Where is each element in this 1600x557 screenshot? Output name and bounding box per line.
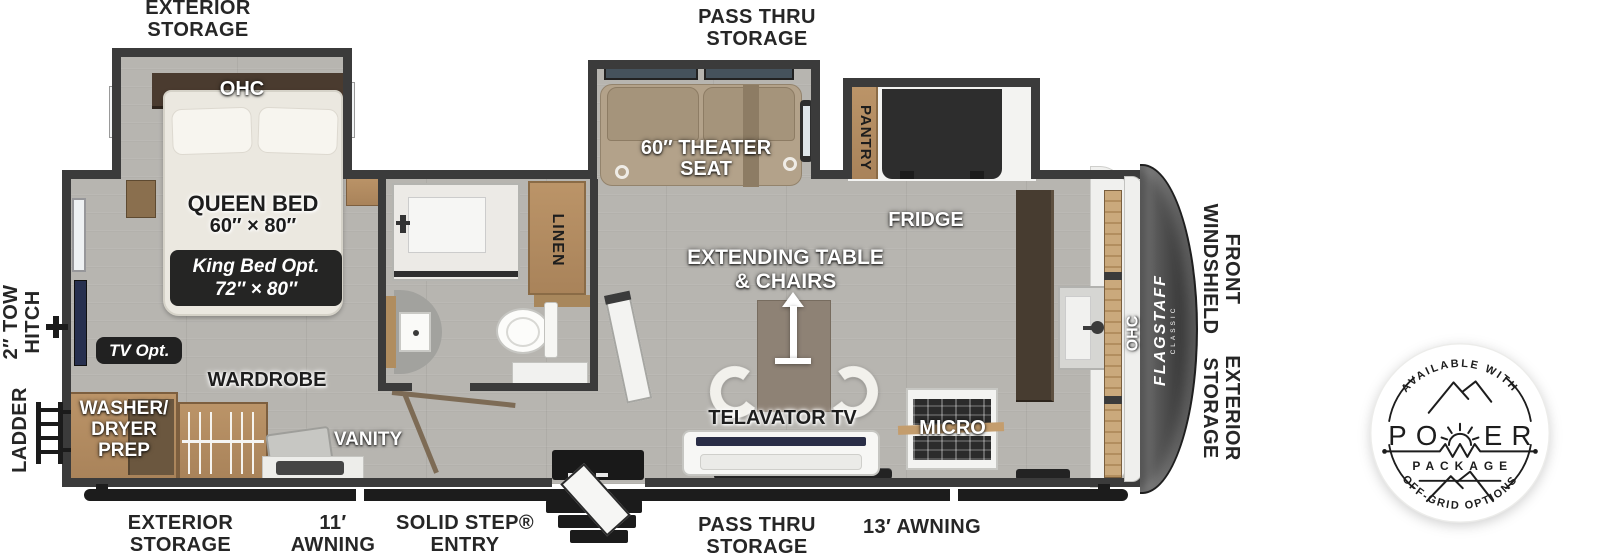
- theater-line: SEAT: [628, 159, 784, 180]
- tv-option-badge: TV Opt.: [96, 337, 182, 364]
- cupholder-icon: [783, 157, 797, 171]
- badge-package-text: PACKAGE: [1412, 459, 1513, 473]
- badge-power-right: ER: [1484, 420, 1541, 451]
- washer-line: DRYER: [70, 419, 178, 440]
- label-line: PASS THRU: [668, 514, 846, 536]
- toilet-seat: [506, 317, 540, 347]
- bedroom-slide-wall: [343, 48, 352, 179]
- rail-bracket: [96, 484, 108, 490]
- badge-power-left: PO: [1388, 420, 1446, 451]
- faucet-icon: [1083, 326, 1093, 330]
- label-exterior-storage-top: EXTERIOR STORAGE: [108, 0, 288, 41]
- tv-drawer: [700, 454, 862, 470]
- bathroom-wall: [378, 179, 386, 391]
- king-bed-name: King Bed Opt.: [172, 255, 340, 278]
- bathroom-wall: [590, 179, 598, 391]
- bathroom-wall: [470, 383, 598, 391]
- theater-line: 60″ THEATER: [628, 138, 784, 159]
- label-linen: LINEN: [546, 200, 568, 280]
- fridge-handle: [900, 171, 914, 179]
- theater-slide-wall: [588, 60, 597, 179]
- threshold-step: [596, 473, 608, 477]
- rear-window: [72, 198, 86, 272]
- entry-steps: [570, 530, 628, 543]
- wall-segment: [820, 170, 843, 179]
- label-queen-bed: QUEEN BED 60″ × 80″: [168, 193, 338, 237]
- label-awning-13: 13′ AWNING: [842, 516, 1002, 538]
- label-fridge: FRIDGE: [870, 210, 982, 231]
- extend-arrow-icon: [782, 292, 804, 307]
- seat-back: [607, 87, 699, 141]
- king-bed-size: 72″ × 80″: [172, 278, 340, 301]
- wall-segment: [645, 478, 1145, 487]
- label-solid-step-entry: SOLID STEP® ENTRY: [380, 512, 550, 556]
- toilet: [496, 308, 550, 354]
- label-telavator-tv: TELAVATOR TV: [690, 407, 875, 429]
- label-line: STORAGE: [108, 19, 288, 41]
- wardrobe-cabinet: [178, 402, 268, 480]
- tv-screen: [696, 437, 866, 446]
- label-line: EXTERIOR: [1221, 348, 1243, 468]
- bath-sink-basin: [399, 312, 431, 352]
- label-line: FRONT: [1221, 199, 1243, 339]
- bedroom-slide-wall: [112, 48, 352, 57]
- label-exterior-storage-right: EXTERIOR STORAGE: [1199, 348, 1243, 468]
- kitchen-slide-wall: [843, 78, 1040, 87]
- hanger-icons: [230, 412, 262, 474]
- label-vanity: VANITY: [320, 429, 416, 450]
- theater-slide-wall: [811, 60, 820, 179]
- label-pantry: PANTRY: [854, 93, 876, 183]
- washer-line: PREP: [70, 440, 178, 461]
- ladder-rung: [36, 450, 63, 454]
- entry-threshold: [552, 450, 644, 480]
- label-line: 2″ TOW: [0, 272, 22, 372]
- wall-segment: [343, 170, 597, 179]
- nightstand: [126, 180, 156, 218]
- flagstaff-logo: FLAGSTAFF CLASSIC: [1152, 245, 1180, 415]
- label-ohc-front: OHC: [1123, 299, 1144, 369]
- fridge-handle: [970, 171, 984, 179]
- rail-gap: [950, 489, 958, 501]
- kitchen-sink: [1058, 286, 1106, 370]
- label-line: ENTRY: [380, 534, 550, 556]
- shower-pan: [408, 197, 486, 253]
- queen-bed-size: 60″ × 80″: [168, 215, 338, 237]
- ladder-rung: [36, 408, 63, 412]
- label-extending-table: EXTENDING TABLE & CHAIRS: [663, 246, 908, 294]
- queen-bed-name: QUEEN BED: [168, 193, 338, 215]
- cabinet-divider: [1104, 272, 1122, 280]
- floorplan-canvas: OHC QUEEN BED 60″ × 80″ King Bed Opt. 72…: [0, 0, 1600, 557]
- label-awning-11: 11′ AWNING: [278, 512, 388, 556]
- table-line: & CHAIRS: [663, 270, 908, 294]
- wall-segment: [62, 478, 552, 487]
- label-pass-thru-bottom: PASS THRU STORAGE: [668, 514, 846, 557]
- label-line: EXTERIOR: [108, 0, 288, 19]
- king-bed-option-badge: King Bed Opt. 72″ × 80″: [170, 250, 342, 306]
- ladder-rung: [36, 436, 63, 440]
- label-exterior-storage-bottom: EXTERIOR STORAGE: [98, 512, 263, 556]
- hanger-icons: [188, 412, 214, 474]
- bedroom-tv: [74, 280, 87, 366]
- label-washer-dryer: WASHER/ DRYER PREP: [70, 398, 178, 461]
- label-tow-hitch: 2″ TOW HITCH: [0, 272, 44, 372]
- linen-base: [534, 295, 592, 307]
- label-line: AWNING: [278, 534, 388, 556]
- cupholder-icon: [615, 165, 629, 179]
- kitchen-slide-wall: [1031, 78, 1040, 179]
- washer-line: WASHER/: [70, 398, 178, 419]
- closet-rod: [182, 440, 264, 443]
- tablet: [276, 461, 344, 475]
- label-line: 11′: [278, 512, 388, 534]
- shower-glass: [394, 271, 518, 277]
- toilet-tank: [544, 302, 558, 358]
- rail-bracket: [1098, 484, 1110, 490]
- label-ladder: LADDER: [9, 382, 31, 478]
- ladder-rung: [36, 422, 63, 426]
- pillow: [257, 107, 339, 156]
- table-line: EXTENDING TABLE: [663, 246, 908, 270]
- line-end-dot: [1382, 449, 1387, 454]
- extend-arrow-icon: [790, 306, 797, 360]
- flagstaff-wordmark: FLAGSTAFF: [1152, 245, 1170, 415]
- label-line: STORAGE: [1199, 348, 1221, 468]
- label-line: STORAGE: [667, 28, 847, 50]
- tow-hitch-icon: [53, 316, 59, 338]
- label-line: STORAGE: [98, 534, 263, 556]
- cabinet-divider: [1104, 396, 1122, 404]
- flagstaff-sub: CLASSIC: [1170, 245, 1177, 415]
- drain-icon: [413, 330, 419, 336]
- telavator-tv-cabinet: [682, 430, 880, 476]
- bathroom-wall: [378, 383, 412, 391]
- label-wardrobe: WARDROBE: [196, 369, 338, 391]
- label-theater-seat: 60″ THEATER SEAT: [628, 138, 784, 180]
- rail-gap: [356, 489, 364, 501]
- pillow: [171, 107, 253, 156]
- bedroom-slide-wall: [112, 48, 121, 179]
- label-line: WINDSHIELD: [1199, 199, 1221, 339]
- shower-head-icon: [396, 221, 410, 225]
- label-line: EXTERIOR: [98, 512, 263, 534]
- label-ohc-bedroom: OHC: [192, 79, 292, 100]
- label-front-windshield: FRONT WINDSHIELD: [1199, 199, 1243, 339]
- kitchen-counter: [1016, 190, 1054, 402]
- bath-sink-ledge: [386, 296, 396, 368]
- label-line: SOLID STEP®: [380, 512, 550, 534]
- theater-slide-wall: [588, 60, 820, 69]
- label-pass-thru-top: PASS THRU STORAGE: [667, 6, 847, 50]
- stove-grate: [913, 436, 991, 460]
- label-micro: MICRO: [905, 418, 1000, 439]
- label-line: PASS THRU: [667, 6, 847, 28]
- window-glass: [803, 106, 810, 156]
- fridge: [882, 89, 1002, 179]
- kitchen-slide-wall: [843, 78, 852, 179]
- label-line: STORAGE: [668, 536, 846, 557]
- front-ohc-cabinets: [1104, 190, 1122, 478]
- shower: [392, 183, 520, 281]
- extend-arrow-icon: [775, 358, 811, 364]
- label-line: HITCH: [22, 272, 44, 372]
- power-package-badge: AVAILABLE WITH PO ER PACKAGE OFF-GRID OP…: [1368, 341, 1552, 525]
